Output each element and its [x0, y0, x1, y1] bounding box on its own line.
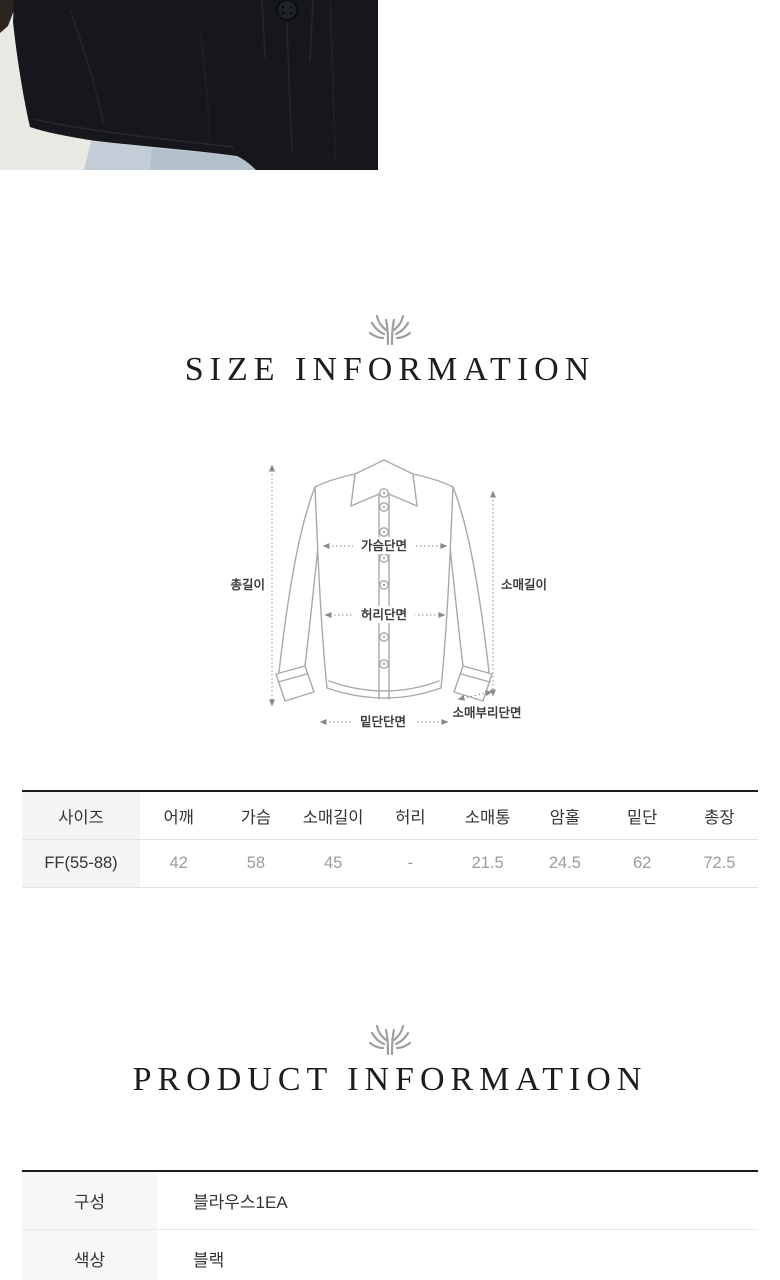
- size-section-ornament: [0, 312, 780, 346]
- size-header-sleeve: 소매길이: [295, 791, 372, 840]
- size-header-armhole: 암홀: [526, 791, 603, 840]
- size-header-shoulder: 어깨: [140, 791, 217, 840]
- size-header-hem: 밑단: [604, 791, 681, 840]
- size-cell-shoulder: 42: [140, 840, 217, 888]
- label-hem: 밑단단면: [360, 714, 406, 729]
- product-row-composition: 구성 블라우스1EA: [22, 1171, 758, 1230]
- product-section-ornament: [0, 1022, 780, 1056]
- size-cell-chest: 58: [217, 840, 294, 888]
- size-cell-length: 72.5: [681, 840, 758, 888]
- product-label-composition: 구성: [22, 1171, 157, 1230]
- size-table-header-row: 사이즈 어깨 가슴 소매길이 허리 소매통 암홀 밑단 총장: [22, 791, 758, 840]
- label-total-length: 총길이: [230, 577, 265, 592]
- product-photo-art: [0, 0, 378, 170]
- label-cuff: 소매부리단면: [452, 705, 521, 720]
- product-section-title: PRODUCT INFORMATION: [0, 1061, 780, 1099]
- size-table: 사이즈 어깨 가슴 소매길이 허리 소매통 암홀 밑단 총장 FF(55-88)…: [22, 790, 758, 888]
- label-sleeve-length: 소매길이: [501, 577, 547, 592]
- size-cell-sleeve-width: 21.5: [449, 840, 526, 888]
- product-detail-page: SIZE INFORMATION: [0, 0, 780, 1280]
- size-cell-sleeve: 45: [295, 840, 372, 888]
- label-chest: 가슴단면: [361, 538, 407, 553]
- laurel-icon: [366, 1022, 414, 1056]
- size-cell-waist: -: [372, 840, 449, 888]
- product-value-composition: 블라우스1EA: [157, 1171, 758, 1230]
- size-header-chest: 가슴: [217, 791, 294, 840]
- size-cell-armhole: 24.5: [526, 840, 603, 888]
- product-info-table: 구성 블라우스1EA 색상 블랙: [22, 1170, 758, 1280]
- laurel-icon: [366, 312, 414, 346]
- size-cell-hem: 62: [604, 840, 681, 888]
- size-section-title: SIZE INFORMATION: [0, 351, 780, 389]
- label-waist: 허리단면: [361, 607, 407, 622]
- size-diagram: 총길이 소매길이 가슴단면 허리단면 밑단단면 소매부리단면: [215, 450, 555, 755]
- shirt-button: [277, 0, 297, 20]
- product-value-color: 블랙: [157, 1230, 758, 1280]
- size-header-waist: 허리: [372, 791, 449, 840]
- size-header-size: 사이즈: [22, 791, 140, 840]
- product-row-color: 색상 블랙: [22, 1230, 758, 1280]
- size-header-sleeve-width: 소매통: [449, 791, 526, 840]
- size-cell-size: FF(55-88): [22, 840, 140, 888]
- product-photo: [0, 0, 378, 170]
- product-label-color: 색상: [22, 1230, 157, 1280]
- size-table-row: FF(55-88) 42 58 45 - 21.5 24.5 62 72.5: [22, 840, 758, 888]
- size-header-length: 총장: [681, 791, 758, 840]
